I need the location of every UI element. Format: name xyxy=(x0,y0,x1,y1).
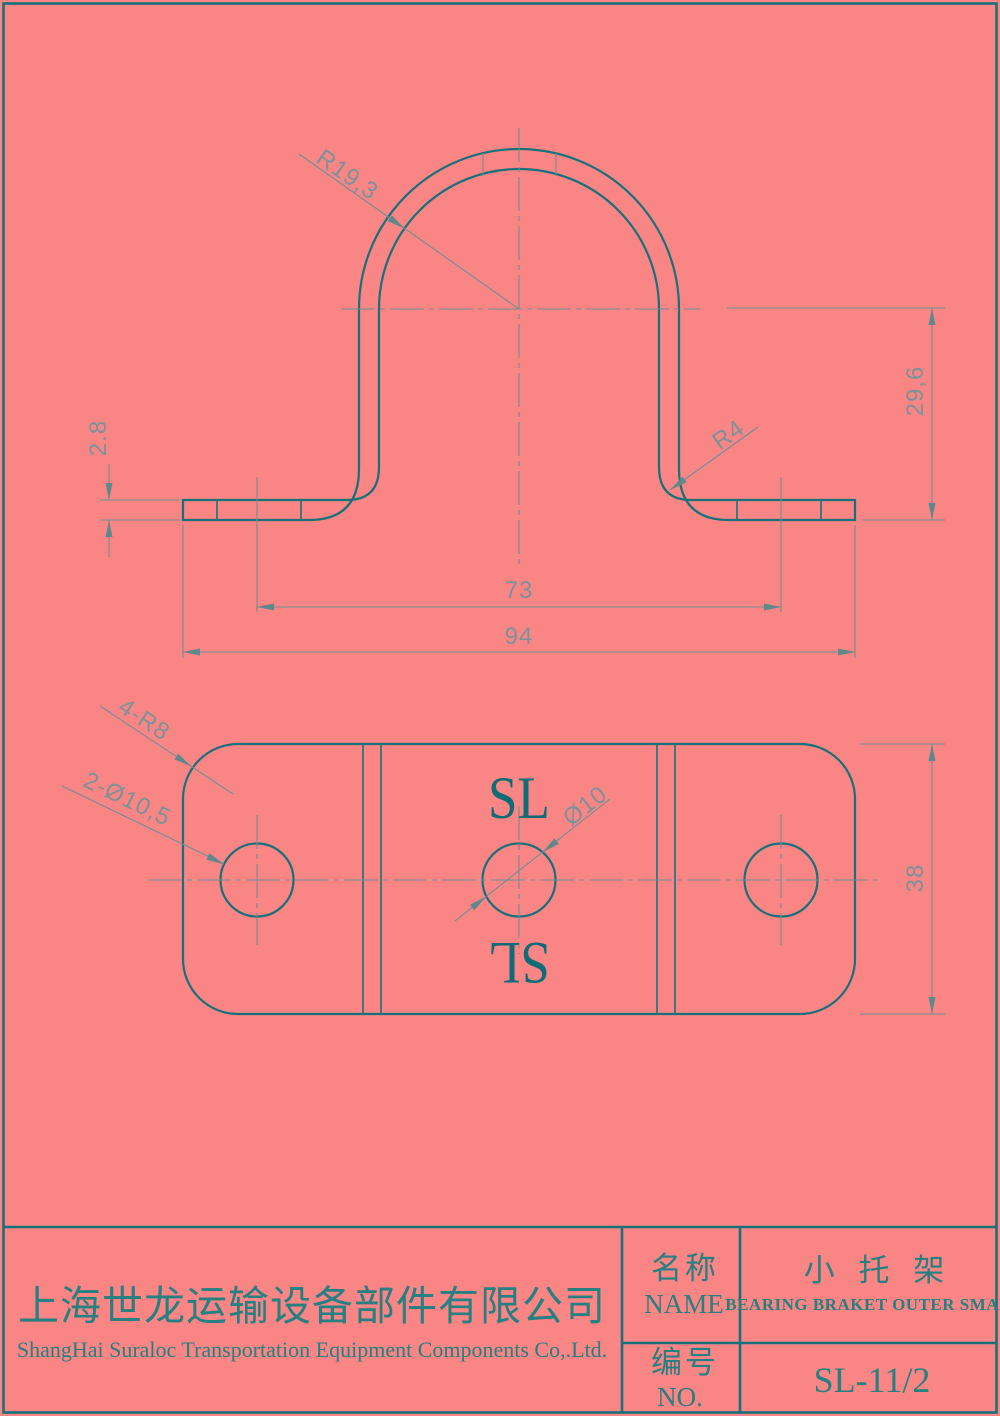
company-name-cn: 上海世龙运输设备部件有限公司 xyxy=(18,1283,606,1329)
front-extension-lines xyxy=(100,308,945,658)
part-number: SL-11/2 xyxy=(814,1360,931,1400)
no-label-en: NO. xyxy=(657,1382,703,1412)
logo-text-mirrored: SL xyxy=(488,930,550,996)
dim-outer-holes: 2-Ø10,5 xyxy=(79,767,175,832)
name-label-en: NAME xyxy=(644,1289,724,1319)
company-name-en: ShangHai Suraloc Transportation Equipmen… xyxy=(17,1337,607,1362)
no-label-cn: 编号 xyxy=(651,1345,719,1380)
logo-text: SL xyxy=(488,765,550,831)
dim-hole-spacing: 73 xyxy=(505,577,534,604)
part-name-en: BEARING BRAKET OUTER SMALL xyxy=(725,1295,1000,1314)
title-block: 上海世龙运输设备部件有限公司 ShangHai Suraloc Transpor… xyxy=(17,1251,1000,1412)
dim-thickness: 2.8 xyxy=(85,420,112,456)
flat-view: 4-R8 2-Ø10,5 Ø10 38 SL SL xyxy=(62,693,945,1014)
dim-plate-width: 38 xyxy=(902,864,929,893)
front-view: R19,3 2.8 R4 29,6 73 94 xyxy=(85,128,945,658)
dim-center-hole: Ø10 xyxy=(558,781,613,832)
name-label-cn: 名称 xyxy=(651,1251,719,1286)
dim-height: 29,6 xyxy=(902,366,929,417)
dim-arch-radius: R19,3 xyxy=(311,144,383,206)
dim-corner-radius: 4-R8 xyxy=(113,693,175,746)
dim-overall-width: 94 xyxy=(505,623,534,650)
cad-drawing: R19,3 2.8 R4 29,6 73 94 xyxy=(0,0,1000,1416)
part-name-cn: 小 托 架 xyxy=(804,1253,953,1288)
drawing-sheet: R19,3 2.8 R4 29,6 73 94 xyxy=(0,0,1000,1416)
dim-bend-radius: R4 xyxy=(707,414,749,455)
